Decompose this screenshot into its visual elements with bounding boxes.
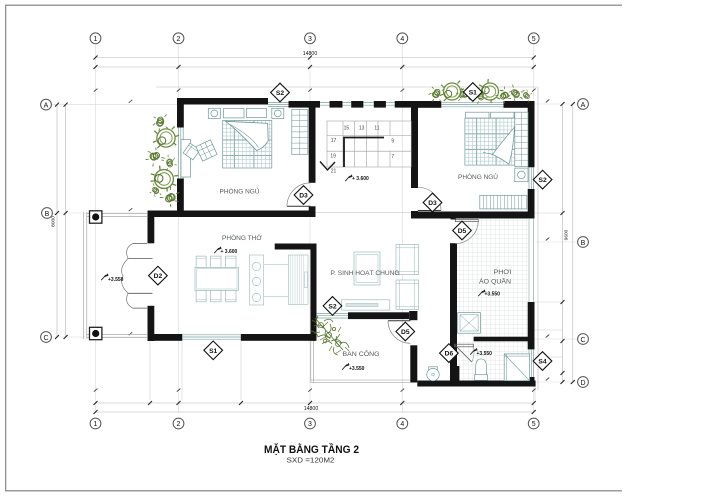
svg-text:S2: S2 [276, 90, 284, 97]
svg-text:PHƠI: PHƠI [494, 269, 512, 276]
svg-text:C: C [580, 337, 585, 344]
svg-text:4: 4 [400, 36, 404, 43]
svg-text:+ 3.600: + 3.600 [221, 249, 238, 255]
svg-text:PHÒNG NGỦ: PHÒNG NGỦ [220, 187, 260, 196]
svg-text:S1: S1 [209, 348, 217, 355]
svg-text:3: 3 [308, 36, 312, 43]
svg-text:7: 7 [391, 154, 394, 160]
svg-text:8000: 8000 [51, 216, 57, 227]
svg-text:1: 1 [94, 421, 98, 428]
svg-text:21: 21 [331, 169, 337, 175]
svg-text:2: 2 [177, 36, 181, 43]
svg-text:B: B [581, 240, 586, 247]
svg-text:B: B [45, 211, 50, 218]
svg-text:MẶT BẰNG TẦNG 2: MẶT BẰNG TẦNG 2 [264, 443, 359, 456]
svg-text:17: 17 [331, 138, 337, 144]
svg-text:P. SINH HOẠT CHUNG: P. SINH HOẠT CHUNG [331, 270, 400, 277]
svg-text:S4: S4 [538, 359, 546, 366]
svg-text:19: 19 [330, 153, 336, 159]
svg-text:D5: D5 [458, 228, 467, 235]
svg-text:PHÒNG THỜ: PHÒNG THỜ [222, 233, 262, 242]
svg-text:3: 3 [308, 421, 312, 428]
svg-text:+3.550: +3.550 [349, 366, 365, 372]
svg-text:PHÒNG NGỦ: PHÒNG NGỦ [458, 172, 498, 181]
svg-text:+3.550: +3.550 [477, 351, 493, 357]
svg-text:1: 1 [94, 36, 98, 43]
svg-text:13: 13 [359, 126, 365, 132]
svg-text:+3.550: +3.550 [485, 292, 501, 298]
svg-text:+3.550: +3.550 [108, 277, 124, 283]
svg-text:D5: D5 [401, 329, 410, 336]
svg-text:9600: 9600 [563, 229, 569, 240]
svg-text:14800: 14800 [303, 51, 318, 57]
svg-text:15: 15 [344, 126, 350, 132]
svg-text:D6: D6 [445, 351, 454, 358]
svg-text:D2: D2 [154, 273, 163, 280]
svg-text:2: 2 [177, 421, 181, 428]
svg-text:S1: S1 [469, 90, 477, 97]
svg-text:D: D [580, 380, 585, 387]
svg-text:4: 4 [400, 421, 404, 428]
svg-text:D3: D3 [428, 200, 437, 207]
svg-text:SXD =120M2: SXD =120M2 [287, 458, 335, 465]
svg-text:A: A [581, 102, 586, 109]
svg-text:C: C [43, 335, 48, 342]
svg-text:11: 11 [374, 126, 379, 132]
svg-text:+ 3.600: + 3.600 [352, 176, 369, 182]
svg-text:D3: D3 [299, 193, 308, 200]
svg-text:S2: S2 [539, 177, 547, 184]
svg-text:9: 9 [391, 139, 394, 145]
svg-text:5: 5 [532, 36, 536, 43]
svg-text:5: 5 [532, 421, 536, 428]
svg-text:14800: 14800 [304, 406, 319, 412]
svg-text:A: A [44, 102, 49, 109]
svg-text:S2: S2 [328, 303, 336, 310]
